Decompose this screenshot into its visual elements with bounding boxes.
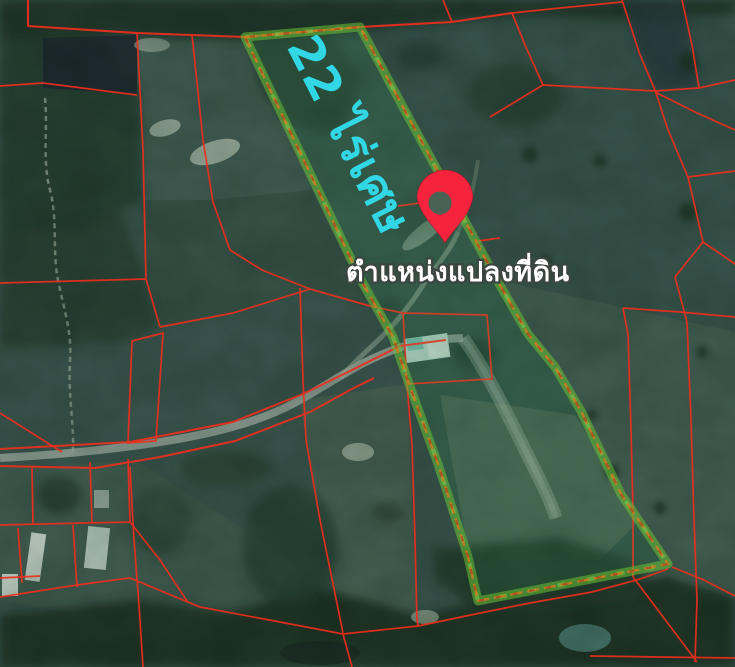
land-parcel-map[interactable]: 22 ไร่เศษ ตำแหน่งแปลงที่ดิน: [0, 0, 735, 667]
parcel-location-label: ตำแหน่งแปลงที่ดิน: [346, 252, 570, 288]
map-canvas: 22 ไร่เศษ ตำแหน่งแปลงที่ดิน: [0, 0, 735, 667]
